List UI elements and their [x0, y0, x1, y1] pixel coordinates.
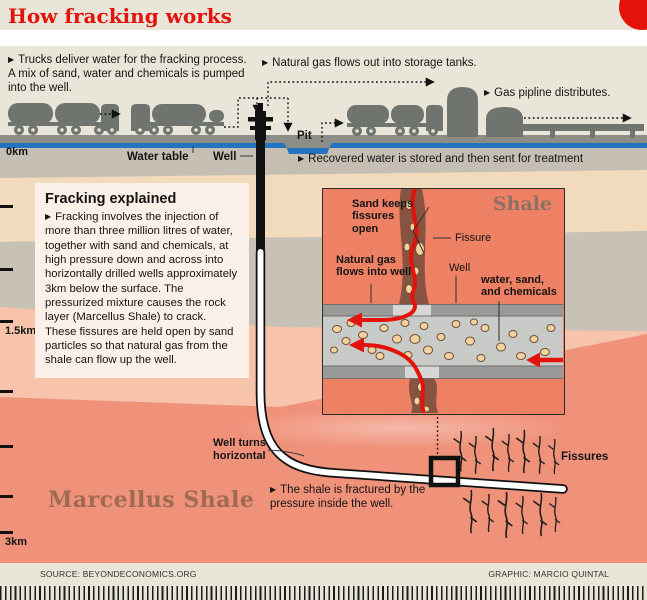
source-credit: SOURCE: BEYONDECONOMICS.ORG — [40, 569, 197, 579]
annotation-trucks: ▶Trucks deliver water for the fracking p… — [8, 53, 248, 95]
inset-well-label: Well — [449, 262, 470, 274]
depth-label-deep: 3km — [5, 536, 27, 548]
depth-tick — [0, 531, 13, 534]
depth-tick — [0, 268, 13, 271]
marcellus-shale-label: Marcellus Shale — [48, 487, 254, 513]
bullet-icon: ▶ — [262, 58, 268, 67]
annotation-recovered: ▶Recovered water is stored and then sent… — [298, 152, 643, 166]
bullet-icon: ▶ — [45, 212, 51, 221]
footer-bar: SOURCE: BEYONDECONOMICS.ORG GRAPHIC: MAR… — [0, 563, 647, 586]
depth-tick — [0, 495, 13, 498]
recovered-water-truck-icon — [347, 105, 443, 136]
inset-diagram: Shale Sand keeps fissures open Fissure N… — [322, 188, 565, 415]
bullet-icon: ▶ — [270, 485, 276, 494]
depth-label-mid: 1.5km — [5, 325, 36, 337]
explainer-body: ▶Fracking involves the injection of more… — [45, 210, 239, 368]
bullet-icon: ▶ — [8, 55, 14, 64]
bullet-icon: ▶ — [298, 154, 304, 163]
annotation-gas-out: ▶Natural gas flows out into storage tank… — [262, 56, 572, 70]
explainer-title: Fracking explained — [45, 191, 239, 207]
inset-fissure-label: Fissure — [455, 232, 491, 244]
water-table-label: Water table — [127, 150, 189, 164]
depth-tick — [0, 445, 13, 448]
fissures-label: Fissures — [561, 450, 608, 464]
annotation-pipeline: ▶Gas pipline distributes. — [484, 86, 644, 100]
depth-tick — [0, 390, 13, 393]
graphic-credit: GRAPHIC: MARCIO QUINTAL — [488, 569, 609, 579]
inset-sand-label: Sand keeps fissures open — [352, 198, 416, 235]
barcode-strip — [0, 586, 647, 600]
inset-gas-label: Natural gas flows into well — [336, 254, 420, 279]
well-surface-label: Well — [213, 150, 236, 164]
depth-tick — [0, 205, 13, 208]
explainer-panel: Fracking explained ▶Fracking involves th… — [35, 183, 249, 378]
depth-label-surface: 0km — [6, 146, 28, 159]
well-turns-label: Well turns horizontal — [213, 437, 275, 464]
inset-mixture-label: water, sand, and chemicals — [481, 274, 565, 299]
infographic-canvas: How fracking works — [0, 0, 647, 600]
wellhead-icon — [248, 103, 273, 254]
water-trucks-icon — [8, 103, 224, 135]
inset-region-label: Shale — [493, 193, 552, 215]
pit-label: Pit — [297, 129, 312, 143]
annotation-fractured: ▶The shale is fractured by the pressure … — [270, 483, 435, 511]
depth-tick — [0, 320, 13, 323]
bullet-icon: ▶ — [484, 88, 490, 97]
